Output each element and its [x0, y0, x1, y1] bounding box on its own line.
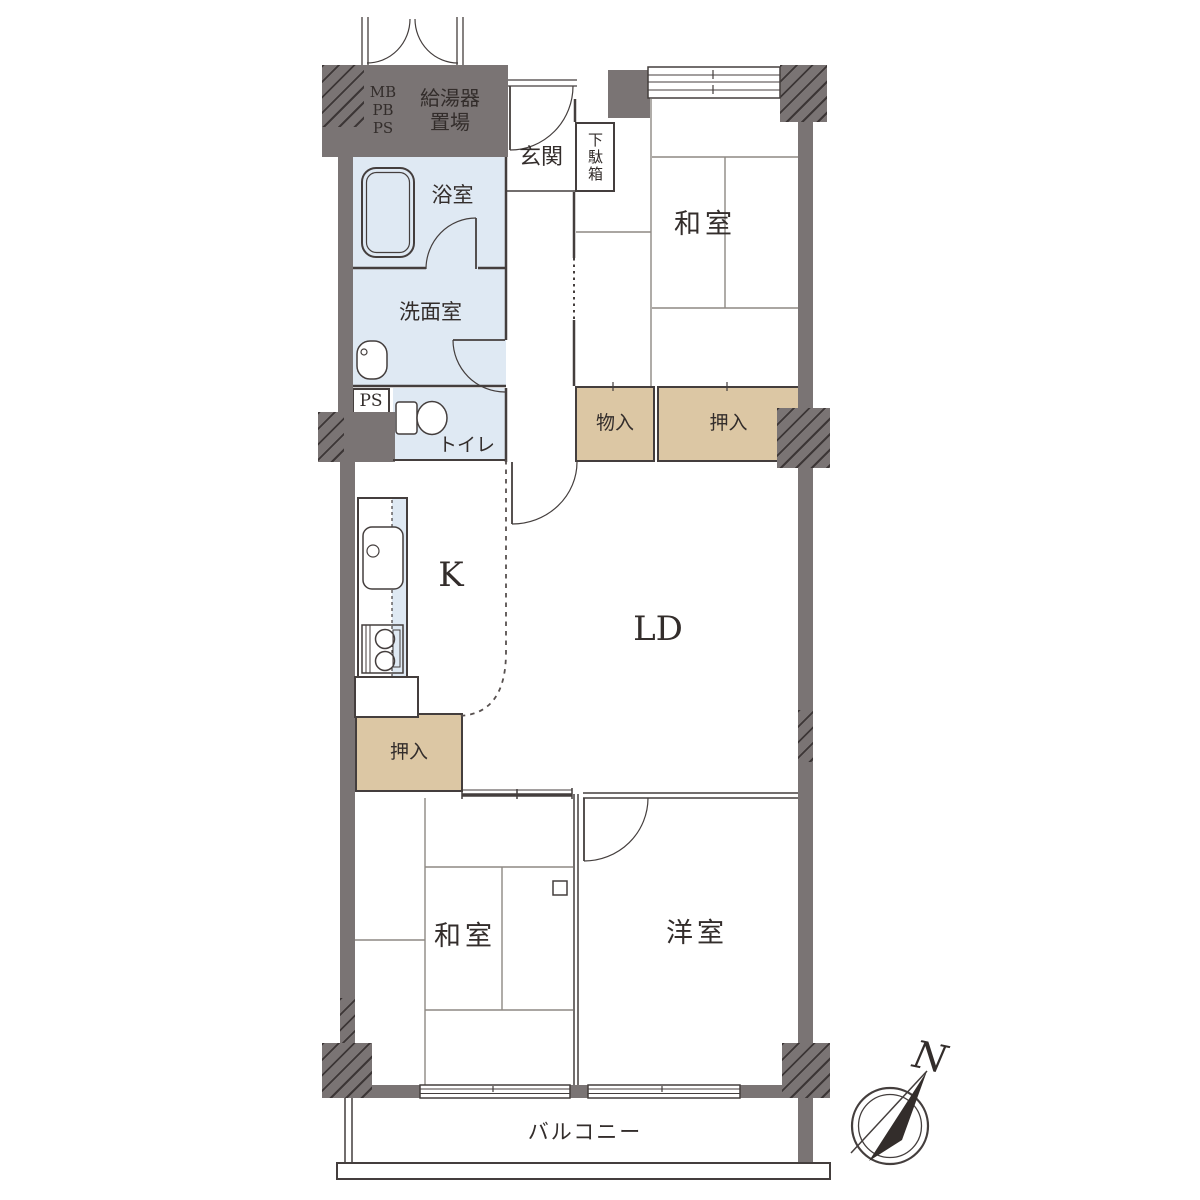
balcony-label: バルコニー: [450, 1119, 720, 1147]
stove-burner-1: [376, 630, 395, 649]
compass-north-label: N: [901, 1030, 959, 1084]
japanese-room-lower-label: 和室: [375, 915, 555, 959]
meter-line3: PS: [373, 119, 393, 137]
toilet-tank: [396, 402, 417, 434]
ld-door-arc: [512, 462, 577, 524]
bathroom-label: 浴室: [400, 181, 505, 211]
toilet-label: トイレ: [424, 432, 509, 458]
washroom-label: 洗面室: [368, 299, 493, 327]
closet-upper-label: 押入: [657, 409, 800, 437]
heater-double-door-arcs: [367, 19, 458, 63]
water-heater-line1: 給湯器: [420, 86, 480, 110]
balcony-slab: [337, 1163, 830, 1179]
western-room-top-wall: [583, 793, 798, 798]
compass-needle: [869, 1071, 927, 1161]
window-balcony-right: [588, 1085, 740, 1098]
meter-line2: PB: [372, 101, 393, 119]
counter-end-box: [355, 677, 418, 717]
front-door-arc: [510, 86, 573, 150]
washbasin: [357, 341, 387, 379]
water-heater-label: 給湯器 置場: [403, 80, 497, 140]
bath-door-arc: [426, 218, 476, 269]
kitchen-label: K: [428, 552, 474, 598]
pipe-space-label: PS: [352, 389, 390, 413]
kitchen-faucet: [367, 545, 379, 557]
balcony-left-rail: [345, 1098, 352, 1163]
front-door-threshold: [508, 80, 577, 86]
shoe-cabinet-label: 下駄箱: [577, 124, 613, 190]
tatami-marker-square: [553, 881, 567, 895]
compass: [851, 1071, 928, 1164]
water-heater-line2: 置場: [430, 110, 470, 134]
closet-lower-label: 押入: [355, 738, 463, 766]
western-room-door-arc: [584, 798, 648, 861]
japanese-room-upper-label: 和室: [615, 205, 795, 245]
meter-label: MB PB PS: [361, 80, 405, 140]
living-dining-label: LD: [618, 606, 698, 652]
window-balcony-left: [420, 1085, 570, 1098]
room-divider-wall: [574, 794, 578, 1085]
toilet-bowl: [417, 402, 447, 435]
heater-door-jambs: [362, 17, 463, 65]
western-room-label: 洋室: [607, 912, 787, 956]
kitchen-sink: [363, 527, 403, 589]
entry-label: 玄関: [506, 143, 576, 173]
storage-label: 物入: [575, 409, 655, 437]
meter-line1: MB: [370, 83, 396, 101]
washroom-door-arc: [453, 340, 505, 392]
floor-plan: MB PB PS 給湯器 置場 玄関 下駄箱 和室 浴室 洗面室 PS トイレ …: [0, 0, 1200, 1200]
stove-edge-lines: [366, 625, 370, 673]
stove-burner-2: [376, 652, 395, 671]
